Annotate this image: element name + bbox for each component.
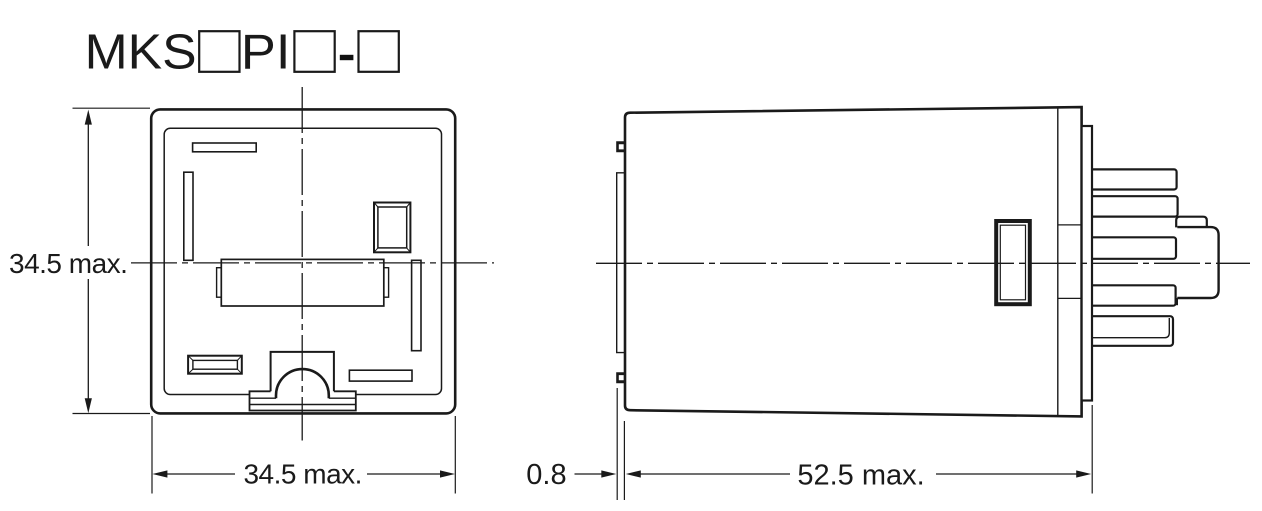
svg-text:34.5 max.: 34.5 max. bbox=[243, 459, 361, 490]
svg-text:34.5 max.: 34.5 max. bbox=[9, 248, 127, 279]
svg-text:PI: PI bbox=[241, 25, 291, 80]
svg-text:0.8: 0.8 bbox=[526, 459, 566, 491]
svg-text:52.5 max.: 52.5 max. bbox=[797, 459, 924, 491]
svg-text:MKS: MKS bbox=[85, 25, 197, 80]
